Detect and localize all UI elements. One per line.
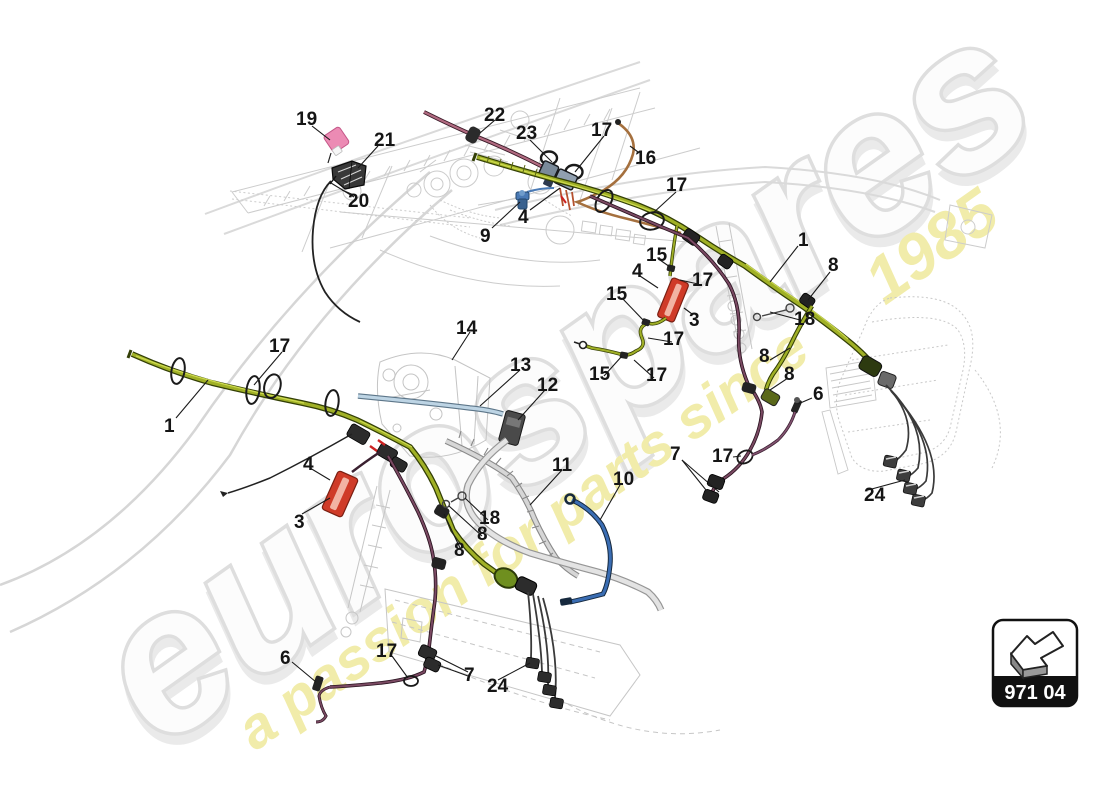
svg-text:7: 7 xyxy=(464,665,475,686)
svg-text:15: 15 xyxy=(646,245,668,266)
svg-text:8: 8 xyxy=(477,524,488,545)
svg-text:971 04: 971 04 xyxy=(1004,682,1066,704)
svg-text:4: 4 xyxy=(518,207,529,228)
svg-text:10: 10 xyxy=(613,469,634,490)
svg-text:17: 17 xyxy=(269,336,290,357)
svg-text:8: 8 xyxy=(828,255,839,276)
svg-text:17: 17 xyxy=(646,365,667,386)
svg-text:20: 20 xyxy=(348,191,369,212)
svg-text:6: 6 xyxy=(280,648,291,669)
svg-text:17: 17 xyxy=(591,120,612,141)
svg-text:22: 22 xyxy=(484,105,505,126)
svg-text:13: 13 xyxy=(510,355,531,376)
svg-text:23: 23 xyxy=(516,123,537,144)
svg-text:17: 17 xyxy=(663,329,684,350)
svg-text:6: 6 xyxy=(813,384,824,405)
svg-text:24: 24 xyxy=(487,676,509,697)
svg-text:8: 8 xyxy=(454,540,465,561)
svg-text:3: 3 xyxy=(294,512,305,533)
svg-text:17: 17 xyxy=(712,446,733,467)
svg-text:4: 4 xyxy=(632,261,643,282)
svg-text:8: 8 xyxy=(784,364,795,385)
svg-text:15: 15 xyxy=(589,364,611,385)
svg-text:17: 17 xyxy=(376,641,397,662)
svg-text:24: 24 xyxy=(864,485,886,506)
svg-text:11: 11 xyxy=(552,455,573,476)
svg-text:19: 19 xyxy=(296,109,317,130)
svg-text:18: 18 xyxy=(794,309,815,330)
svg-text:17: 17 xyxy=(666,175,687,196)
svg-text:3: 3 xyxy=(689,310,700,331)
svg-text:8: 8 xyxy=(759,346,770,367)
svg-text:17: 17 xyxy=(692,270,713,291)
svg-text:21: 21 xyxy=(374,130,396,151)
svg-text:1: 1 xyxy=(798,230,809,251)
svg-text:1: 1 xyxy=(164,416,175,437)
svg-text:9: 9 xyxy=(480,226,491,247)
svg-text:16: 16 xyxy=(635,148,656,169)
svg-text:7: 7 xyxy=(670,444,681,465)
svg-text:12: 12 xyxy=(537,375,558,396)
svg-text:4: 4 xyxy=(303,454,314,475)
svg-text:14: 14 xyxy=(456,318,478,339)
svg-text:15: 15 xyxy=(606,284,628,305)
